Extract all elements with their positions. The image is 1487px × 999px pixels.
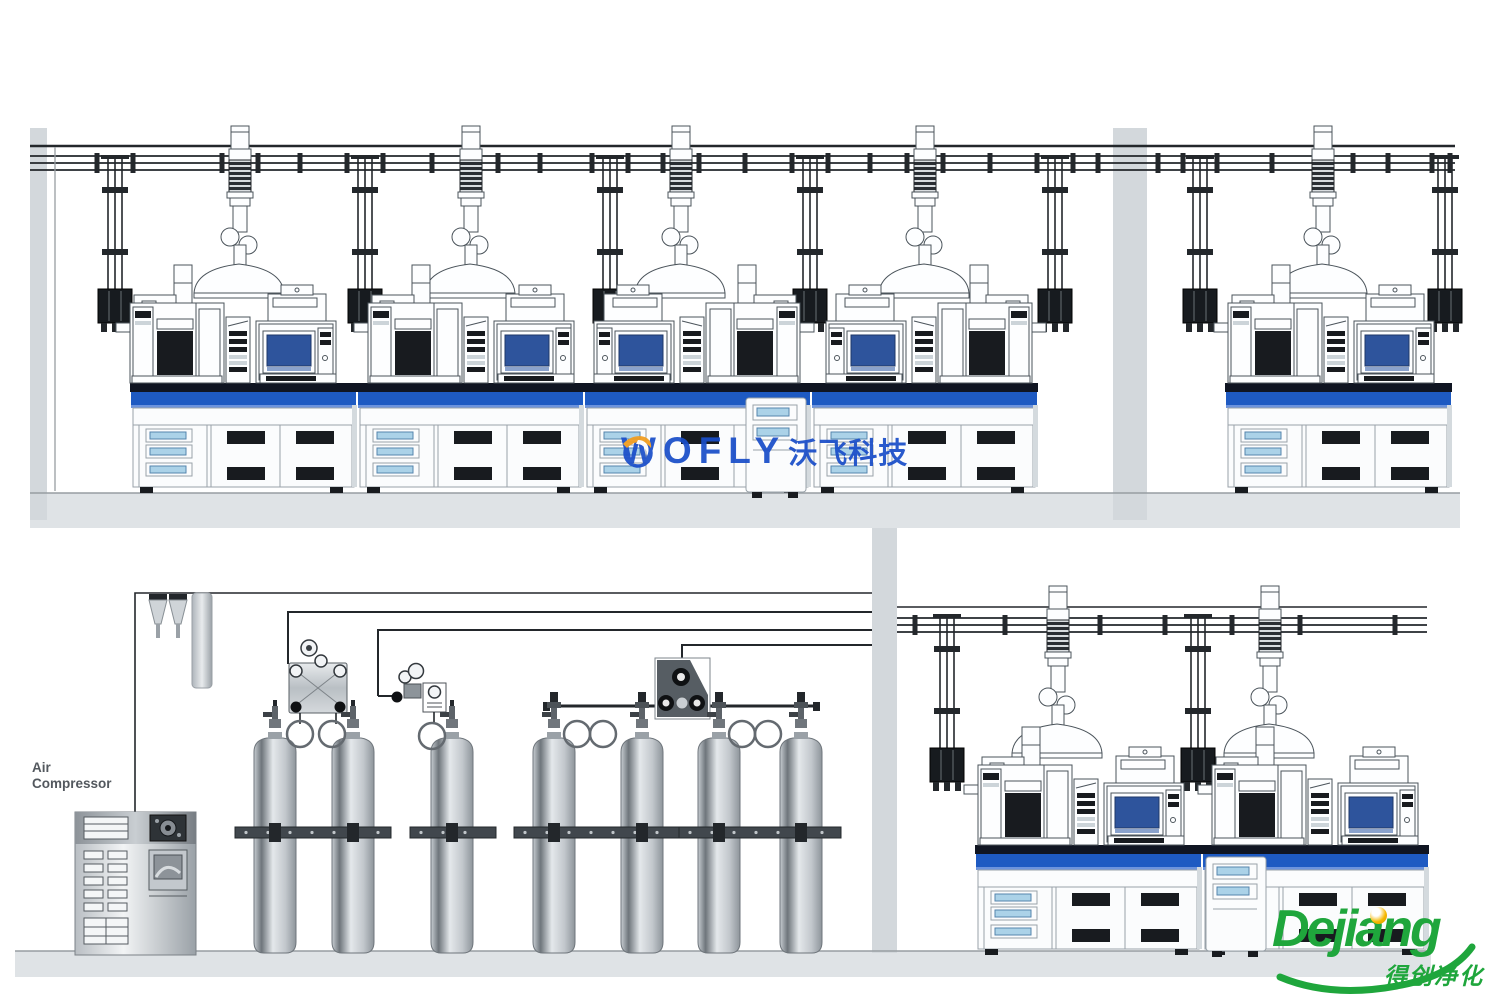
manifold-supply-pipe-1	[288, 612, 872, 664]
pipe-clamp	[1351, 153, 1356, 173]
pipe-clamp	[1298, 615, 1303, 635]
pigtail-loop	[287, 721, 313, 747]
changeover-manifold-station	[289, 640, 347, 724]
pipe-clamp	[661, 153, 666, 173]
manifold-supply-pipe-2	[378, 630, 872, 696]
pipe-clamp	[256, 153, 261, 173]
gas-drop-station	[1038, 155, 1072, 332]
pipe-clamp	[430, 153, 435, 173]
mobile-cabinet	[1206, 857, 1266, 957]
pigtail-loop	[729, 721, 755, 747]
pigtail-loop	[564, 721, 590, 747]
pipe-clamp	[95, 153, 100, 173]
fume-extraction-arm	[425, 126, 515, 298]
fume-extraction-arm	[879, 126, 969, 298]
gas-drop-station	[930, 614, 964, 791]
pipe-clamp	[1098, 615, 1103, 635]
pipe-clamp	[1071, 153, 1076, 173]
pipe-clamp	[1003, 615, 1008, 635]
fume-extraction-arm	[194, 126, 284, 298]
upper-lab-floor	[30, 493, 1460, 528]
pigtail-loop	[319, 721, 345, 747]
central-manifold-panel	[543, 658, 820, 719]
pipe-clamp	[1096, 153, 1101, 173]
pipe-clamp	[220, 153, 225, 173]
pipe-clamp	[590, 153, 595, 173]
pipe-clamp	[1035, 153, 1040, 173]
air-compressor-label: Air Compressor	[32, 760, 112, 791]
pigtail-loop	[755, 721, 781, 747]
pipe-clamp	[1156, 153, 1161, 173]
gas-drop-station	[1181, 614, 1215, 791]
upper-lab-left-wall	[30, 128, 47, 520]
pipe-clamp	[790, 153, 795, 173]
regulator-station	[392, 664, 447, 723]
pipe-clamp	[381, 153, 386, 173]
pipe-clamp	[941, 153, 946, 173]
ceiling-filter-cluster	[149, 593, 212, 688]
bench-module	[811, 383, 1038, 493]
pipe-clamp	[988, 153, 993, 173]
bench-module	[975, 845, 1202, 955]
gas-drop-station	[1183, 155, 1217, 332]
pipe-clamp	[868, 153, 873, 173]
pipe-clamp	[1163, 615, 1168, 635]
bench-module	[1225, 383, 1452, 493]
fume-extraction-arm	[635, 126, 725, 298]
pipe-clamp	[1270, 153, 1275, 173]
pipe-clamp	[1230, 615, 1235, 635]
pipe-clamp	[1181, 153, 1186, 173]
diagram-canvas	[0, 0, 1487, 999]
pipe-clamp	[496, 153, 501, 173]
lab-gas-system-diagram: Air Compressor WOFLY 沃飞科技 Dejiang 得创净化	[0, 0, 1487, 999]
pipe-clamp	[697, 153, 702, 173]
pipe-clamp	[131, 153, 136, 173]
pipe-clamp	[626, 153, 631, 173]
manifold-valve	[712, 692, 726, 708]
pipe-clamp	[538, 153, 543, 173]
pipe-clamp	[1386, 153, 1391, 173]
manifold-valve	[794, 692, 808, 708]
bench-module	[130, 383, 357, 493]
pipe-clamp	[1215, 153, 1220, 173]
pipe-clamp	[298, 153, 303, 173]
gas-drop-station	[1428, 155, 1462, 332]
pigtail-loop	[590, 721, 616, 747]
pipe-clamp	[913, 615, 918, 635]
cylinder-bracket	[410, 823, 496, 842]
lower-right-room-left-wall	[872, 528, 897, 953]
manifold-valve	[547, 692, 561, 708]
air-compressor-unit	[75, 812, 196, 955]
pipe-clamp	[905, 153, 910, 173]
manifold-valve	[635, 692, 649, 708]
pipe-clamp	[345, 153, 350, 173]
pipe-clamp	[743, 153, 748, 173]
bench-module	[357, 383, 584, 493]
pipe-clamp	[826, 153, 831, 173]
mobile-cabinet	[746, 398, 806, 498]
upper-lab-divider-wall	[1113, 128, 1147, 520]
pipe-clamp	[1393, 615, 1398, 635]
gas-drop-station	[98, 155, 132, 332]
cylinder-room-outline	[135, 593, 872, 951]
